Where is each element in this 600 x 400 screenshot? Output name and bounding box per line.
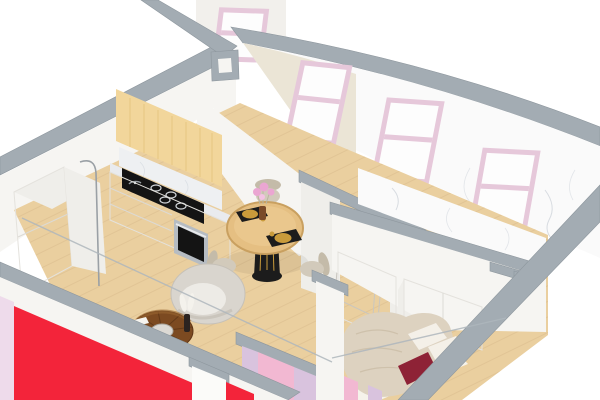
gold-plate-2: [275, 233, 292, 243]
bottle: [184, 314, 190, 332]
flower: [253, 188, 261, 196]
floorplan-render: [0, 0, 600, 400]
column-cap-inner: [218, 58, 232, 73]
flower-vase: [259, 206, 266, 220]
flower: [268, 189, 275, 196]
white-wall-segment: [316, 281, 344, 400]
pedestal-base: [252, 270, 282, 282]
flower: [259, 194, 265, 200]
gold-cup-2: [270, 232, 275, 237]
pink-sliver: [0, 296, 14, 400]
flower: [260, 183, 269, 192]
isometric-scene: [0, 0, 600, 400]
gold-plate-1: [242, 210, 258, 219]
